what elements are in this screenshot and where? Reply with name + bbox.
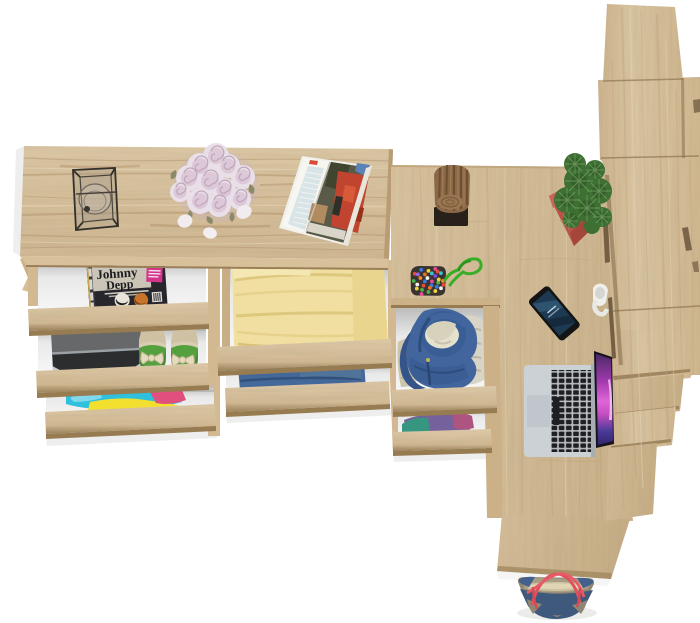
svg-text:Depp: Depp	[106, 277, 135, 293]
